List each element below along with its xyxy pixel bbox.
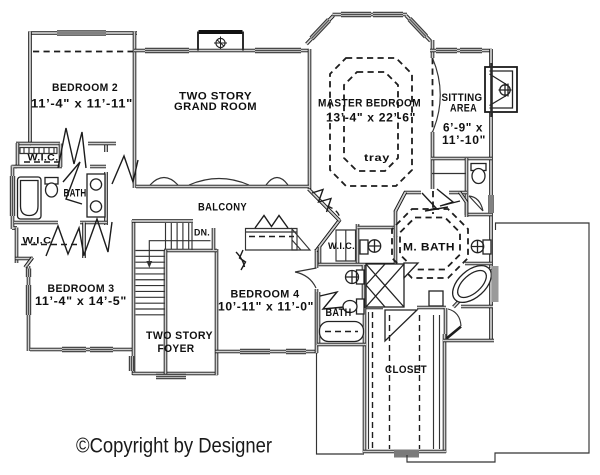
svg-text:W.I.C: W.I.C <box>23 236 52 247</box>
svg-text:11’-10": 11’-10" <box>442 135 486 147</box>
svg-text:tray: tray <box>364 153 390 164</box>
svg-text:W.I.C.: W.I.C. <box>328 241 355 252</box>
svg-text:11’-4" x 14’-5": 11’-4" x 14’-5" <box>35 296 127 308</box>
svg-text:MASTER BEDROOM: MASTER BEDROOM <box>318 98 421 110</box>
svg-text:©Copyright by Designer: ©Copyright by Designer <box>76 434 272 458</box>
svg-text:BATH: BATH <box>326 307 352 319</box>
svg-text:11’-4" x 11’-11": 11’-4" x 11’-11" <box>31 99 133 111</box>
svg-text:BEDROOM 3: BEDROOM 3 <box>48 283 115 295</box>
svg-text:W.I.C.: W.I.C. <box>28 153 59 164</box>
svg-text:CLOSET: CLOSET <box>385 364 427 376</box>
svg-text:AREA: AREA <box>450 103 477 115</box>
svg-text:BEDROOM 2: BEDROOM 2 <box>52 82 118 94</box>
svg-text:6’-9" x: 6’-9" x <box>443 123 483 135</box>
svg-text:DN.: DN. <box>194 228 210 239</box>
svg-text:BEDROOM 4: BEDROOM 4 <box>231 289 300 301</box>
svg-text:M. BATH: M. BATH <box>403 242 455 254</box>
svg-text:10’-11" x 11’-0": 10’-11" x 11’-0" <box>218 302 314 314</box>
svg-text:FOYER: FOYER <box>158 343 195 355</box>
svg-text:GRAND ROOM: GRAND ROOM <box>174 101 257 113</box>
svg-text:BATH: BATH <box>64 188 87 200</box>
svg-text:TWO STORY: TWO STORY <box>146 330 213 342</box>
svg-text:13’-4" x 22’-6": 13’-4" x 22’-6" <box>326 113 416 125</box>
svg-text:BALCONY: BALCONY <box>198 202 247 214</box>
